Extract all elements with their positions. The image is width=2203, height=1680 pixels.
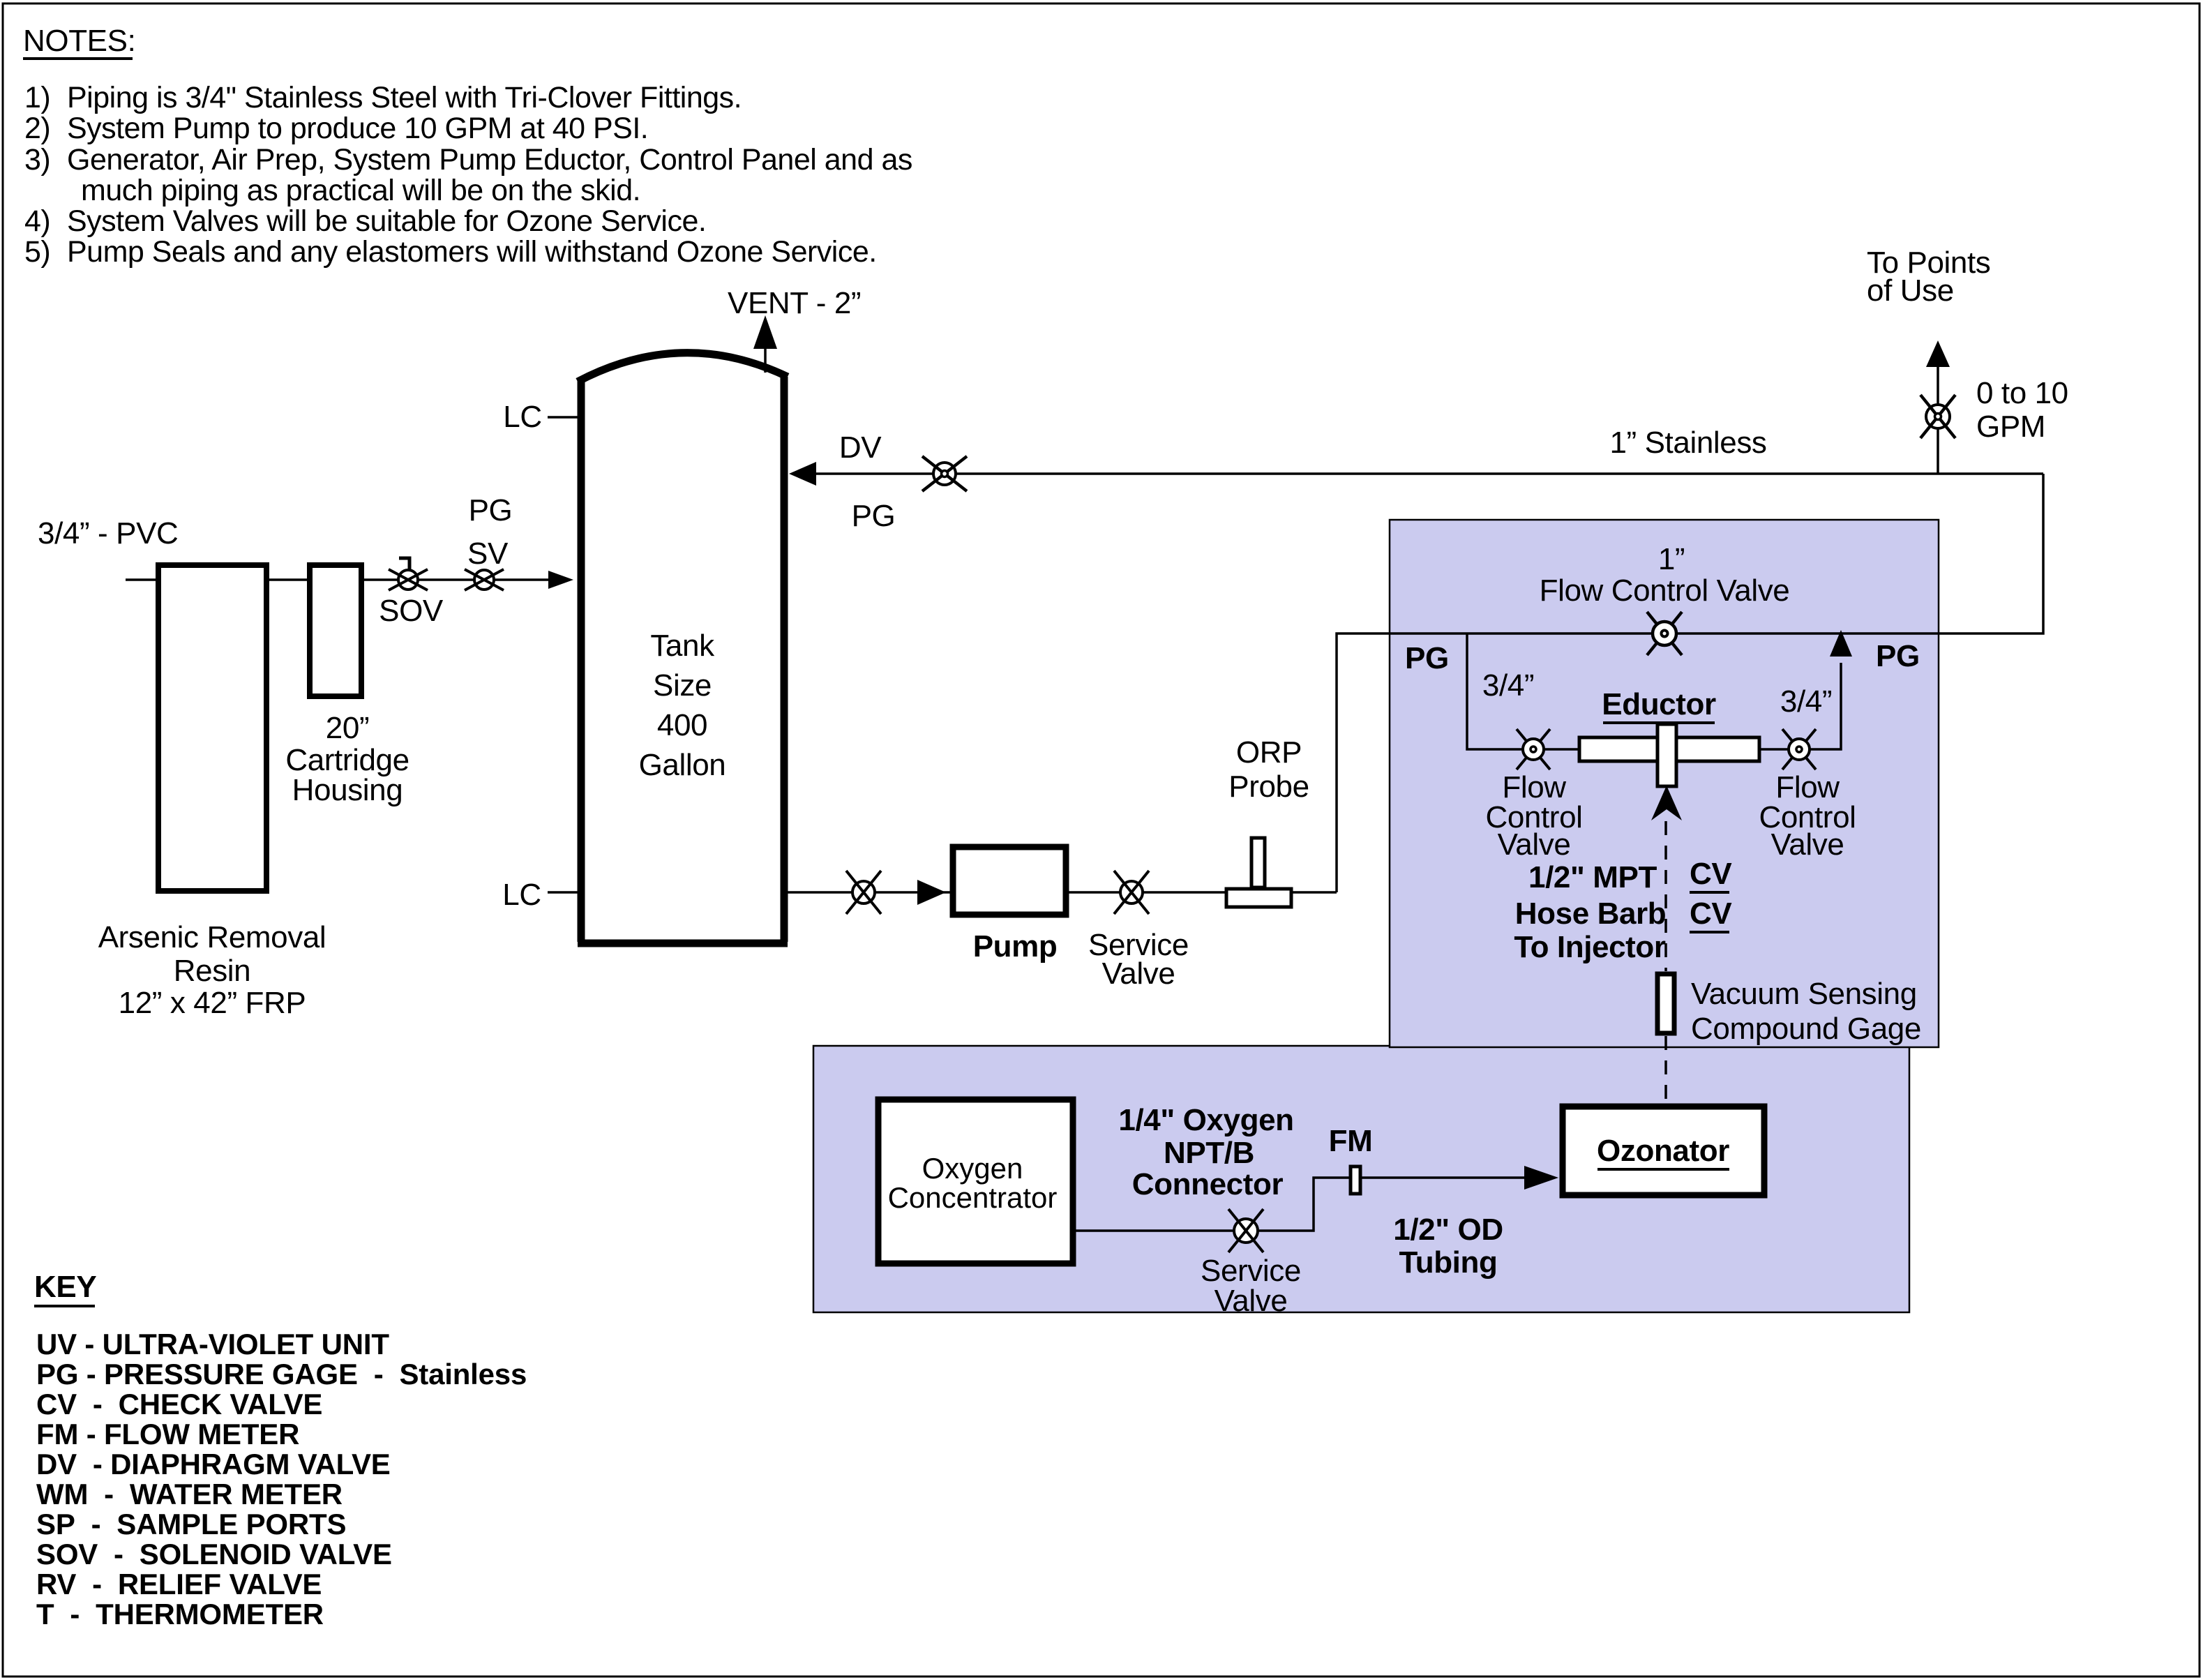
svg-text:Valve: Valve <box>1498 827 1571 862</box>
svg-text:FM - FLOW METER: FM - FLOW METER <box>36 1418 299 1450</box>
svg-text:LC: LC <box>503 400 541 434</box>
svg-text:Size: Size <box>653 668 712 703</box>
svg-text:CV: CV <box>1690 897 1732 931</box>
svg-text:1”: 1” <box>1658 542 1685 576</box>
svg-text:0 to 10: 0 to 10 <box>1976 376 2068 410</box>
svg-text:12” x 42” FRP: 12” x 42” FRP <box>119 986 306 1020</box>
svg-text:NOTES:: NOTES: <box>23 24 135 58</box>
svg-text:Connector: Connector <box>1132 1167 1284 1201</box>
svg-text:PG: PG <box>1405 641 1449 675</box>
svg-text:Oxygen: Oxygen <box>922 1152 1023 1185</box>
svg-text:Eductor: Eductor <box>1602 687 1716 721</box>
svg-text:Pump: Pump <box>973 929 1058 963</box>
svg-text:Flow Control Valve: Flow Control Valve <box>1540 573 1790 608</box>
svg-text:5)Pump Seals and any elastomer: 5)Pump Seals and any elastomers will wit… <box>24 235 877 269</box>
svg-text:2)System Pump to produce 10 GP: 2)System Pump to produce 10 GPM at 40 PS… <box>24 112 648 145</box>
svg-text:Resin: Resin <box>174 954 251 988</box>
svg-text:4)System Valves will be suitab: 4)System Valves will be suitable for Ozo… <box>24 204 706 238</box>
svg-text:3/4”: 3/4” <box>1482 668 1534 703</box>
svg-text:Service: Service <box>1201 1254 1301 1288</box>
svg-text:1/2" MPT: 1/2" MPT <box>1528 860 1657 894</box>
svg-text:Concentrator: Concentrator <box>888 1181 1058 1214</box>
svg-text:DV - DIAPHRAGM VALVE: DV - DIAPHRAGM VALVE <box>36 1448 391 1480</box>
svg-text:Valve: Valve <box>1215 1284 1288 1318</box>
svg-text:VENT - 2”: VENT - 2” <box>728 286 861 320</box>
svg-text:Gallon: Gallon <box>639 748 726 782</box>
svg-text:1)Piping is 3/4" Stainless Ste: 1)Piping is 3/4" Stainless Steel with Tr… <box>24 81 742 114</box>
svg-text:PG: PG <box>852 499 896 533</box>
svg-text:ORP: ORP <box>1236 735 1302 770</box>
svg-text:3)Generator, Air Prep, System: 3)Generator, Air Prep, System Pump Educt… <box>24 143 912 177</box>
svg-text:Cartridge: Cartridge <box>285 743 409 777</box>
svg-text:To Injector: To Injector <box>1514 930 1666 964</box>
svg-text:Housing: Housing <box>292 773 403 807</box>
svg-text:400: 400 <box>657 708 707 742</box>
svg-text:Hose Barb: Hose Barb <box>1515 897 1666 931</box>
svg-text:FM: FM <box>1329 1124 1373 1158</box>
svg-text:1” Stainless: 1” Stainless <box>1609 426 1766 460</box>
svg-text:SV: SV <box>467 537 509 571</box>
svg-text:Tank: Tank <box>650 629 715 663</box>
svg-text:3/4”: 3/4” <box>1780 684 1832 719</box>
svg-text:SOV - SOLENOID VALVE: SOV - SOLENOID VALVE <box>36 1538 392 1570</box>
svg-text:NPT/B: NPT/B <box>1164 1136 1254 1170</box>
svg-text:Valve: Valve <box>1771 827 1844 862</box>
svg-text:GPM: GPM <box>1976 410 2045 444</box>
svg-text:UV - ULTRA-VIOLET UNIT: UV - ULTRA-VIOLET UNIT <box>36 1328 389 1360</box>
svg-text:Compound Gage: Compound Gage <box>1691 1012 1921 1046</box>
svg-text:CV: CV <box>1690 857 1732 891</box>
svg-text:Ozonator: Ozonator <box>1597 1134 1729 1168</box>
svg-text:SOV: SOV <box>379 594 444 628</box>
svg-text:Tubing: Tubing <box>1399 1245 1498 1280</box>
svg-text:3/4” - PVC: 3/4” - PVC <box>38 516 178 550</box>
svg-text:1/4" Oxygen: 1/4" Oxygen <box>1118 1103 1293 1137</box>
svg-text:Valve: Valve <box>1102 957 1175 991</box>
svg-text:RV - RELIEF VALVE: RV - RELIEF VALVE <box>36 1568 322 1600</box>
svg-text:Flow: Flow <box>1775 770 1840 804</box>
svg-text:DV: DV <box>839 430 882 465</box>
svg-text:LC: LC <box>502 878 541 912</box>
svg-text:Vacuum Sensing: Vacuum Sensing <box>1691 977 1917 1011</box>
svg-text:CV - CHECK VALVE: CV - CHECK VALVE <box>36 1388 322 1420</box>
svg-text:T - THERMOMETER: T - THERMOMETER <box>36 1598 324 1630</box>
svg-text:PG - PRESSURE GAGE - Stainle: PG - PRESSURE GAGE - Stainless <box>36 1358 527 1390</box>
svg-text:1/2" OD: 1/2" OD <box>1393 1213 1503 1247</box>
svg-text:PG: PG <box>1876 639 1920 673</box>
svg-text:WM - WATER METER: WM - WATER METER <box>36 1478 343 1510</box>
svg-text:Flow: Flow <box>1502 770 1566 804</box>
svg-text:PG: PG <box>469 493 513 527</box>
svg-text:Arsenic Removal: Arsenic Removal <box>98 920 326 954</box>
svg-text:SP - SAMPLE PORTS: SP - SAMPLE PORTS <box>36 1508 346 1540</box>
svg-text:20”: 20” <box>326 711 369 745</box>
svg-text:KEY: KEY <box>34 1270 96 1304</box>
svg-text:of Use: of Use <box>1867 273 1954 308</box>
svg-text:much piping as practical will: much piping as practical will be on the … <box>81 174 640 207</box>
svg-text:Probe: Probe <box>1228 770 1309 804</box>
